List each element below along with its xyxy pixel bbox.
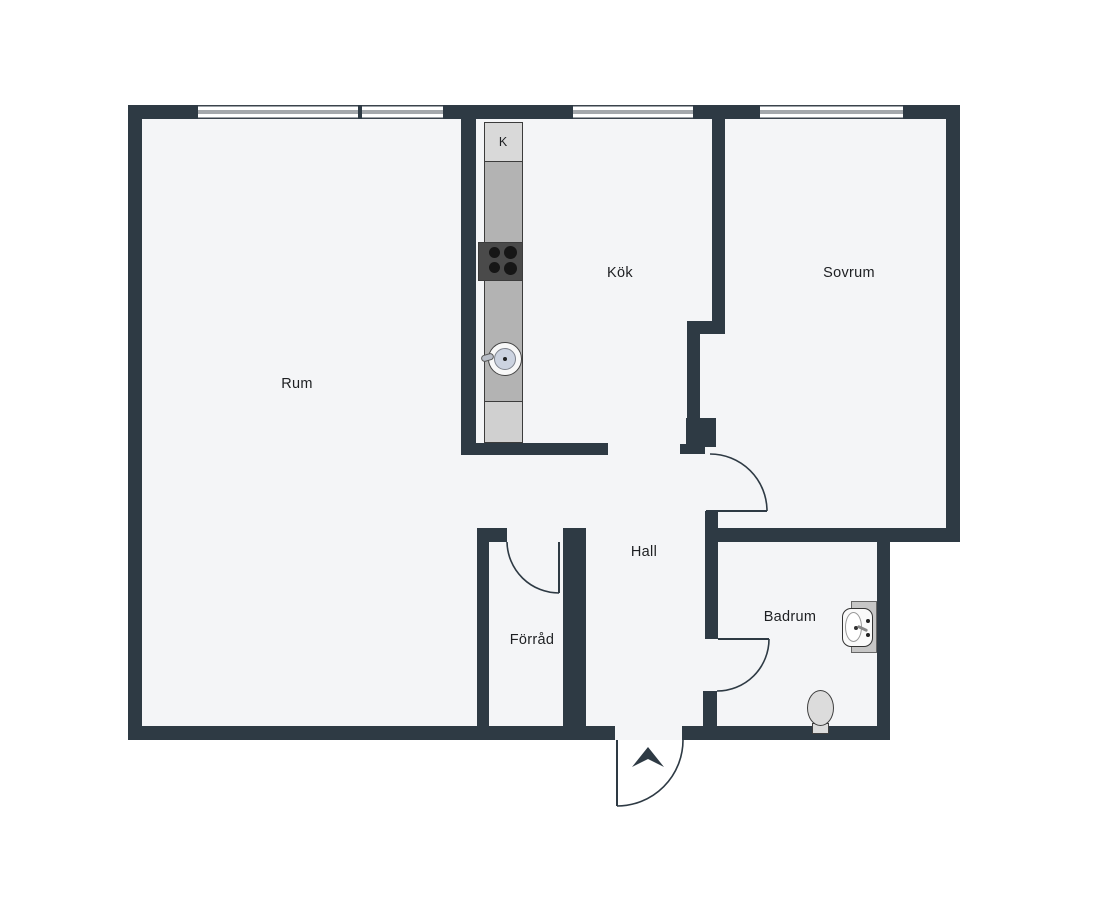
entrance-arrow-icon [632,747,664,767]
sovrum-door-arc [710,454,767,511]
kok-label: Kök [607,265,633,281]
badrum-label: Badrum [764,609,817,625]
forrad-door-arc [507,542,559,593]
door-swings-overlay [0,0,1119,900]
fridge-label: K [499,135,507,149]
rum-label: Rum [281,376,313,392]
badrum-door-arc [717,639,769,691]
hall-label: Hall [631,544,657,560]
floor-plan: Rum Kök Sovrum Hall Förråd Badrum K [0,0,1119,900]
sovrum-label: Sovrum [823,265,875,281]
forrad-label: Förråd [510,632,555,648]
